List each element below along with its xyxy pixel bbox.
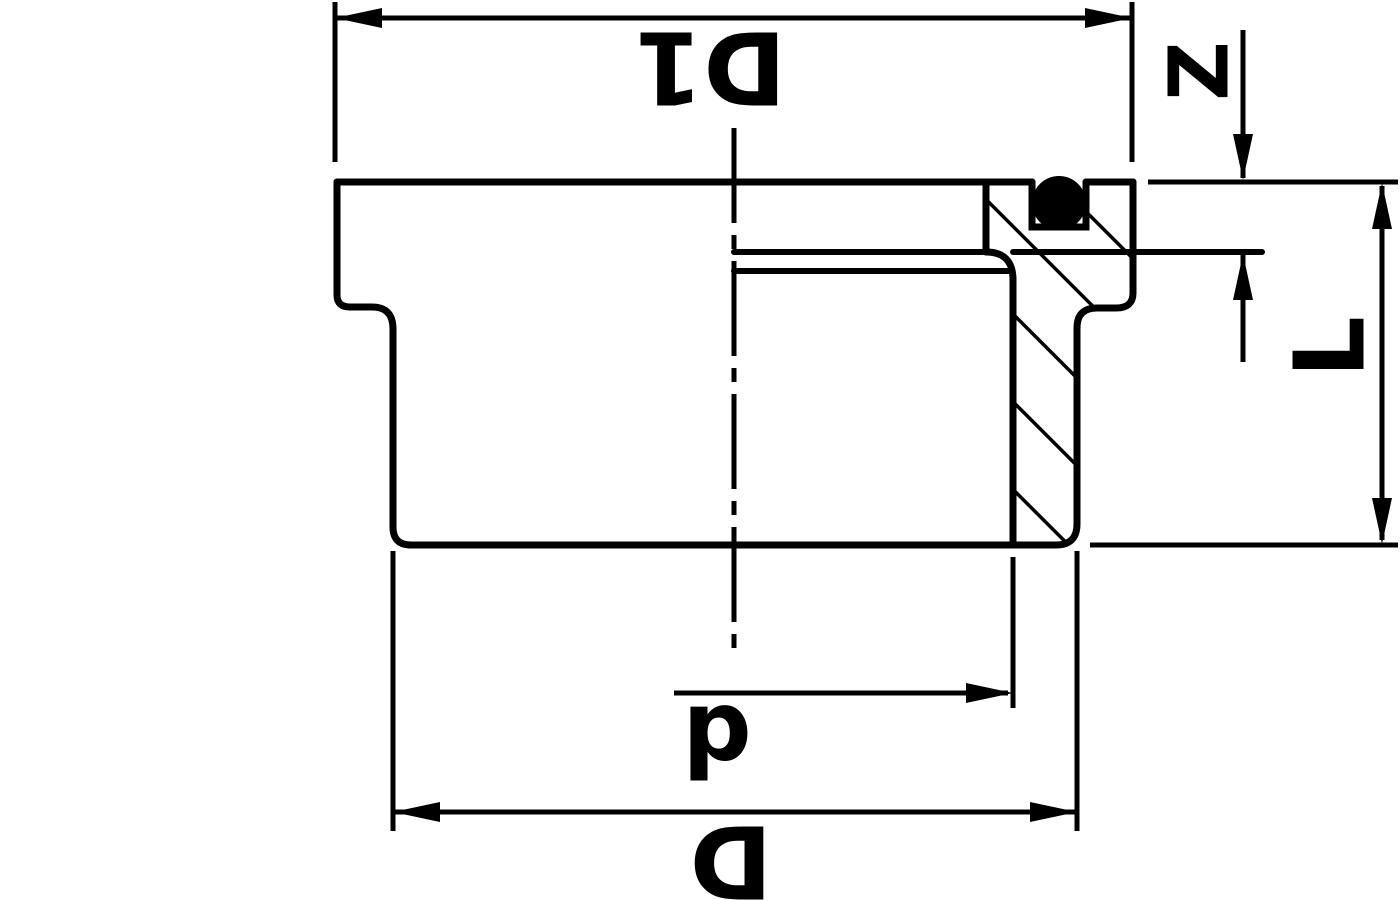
d1-arrow-right (1085, 8, 1132, 28)
d-outer-arrow-left (393, 802, 440, 822)
d-outer-arrow-right (1030, 802, 1077, 822)
l-arrow-down (1372, 498, 1392, 544)
d1-arrow-left (335, 8, 382, 28)
dim-label-d-outer: D (689, 803, 772, 900)
l-arrow-up (1372, 183, 1392, 229)
d-arrow-right (966, 683, 1013, 703)
dim-label-d: d (682, 684, 751, 797)
fitting-cross-section-drawing: D1 Z L d D (0, 0, 1400, 900)
o-ring-circle (1032, 176, 1086, 230)
dimension-z: Z (1148, 30, 1398, 362)
dim-label-l: L (1274, 316, 1387, 378)
socket-wall (986, 252, 1013, 545)
dim-label-z: Z (1153, 41, 1248, 100)
section-hatch-region (986, 182, 1133, 545)
dim-label-d1: D1 (634, 9, 787, 126)
z-arrow-down (1233, 134, 1253, 180)
technical-drawing-canvas: D1 Z L d D (0, 0, 1400, 900)
o-ring-seal (1032, 176, 1086, 230)
dimension-d-small: d (674, 557, 1013, 797)
